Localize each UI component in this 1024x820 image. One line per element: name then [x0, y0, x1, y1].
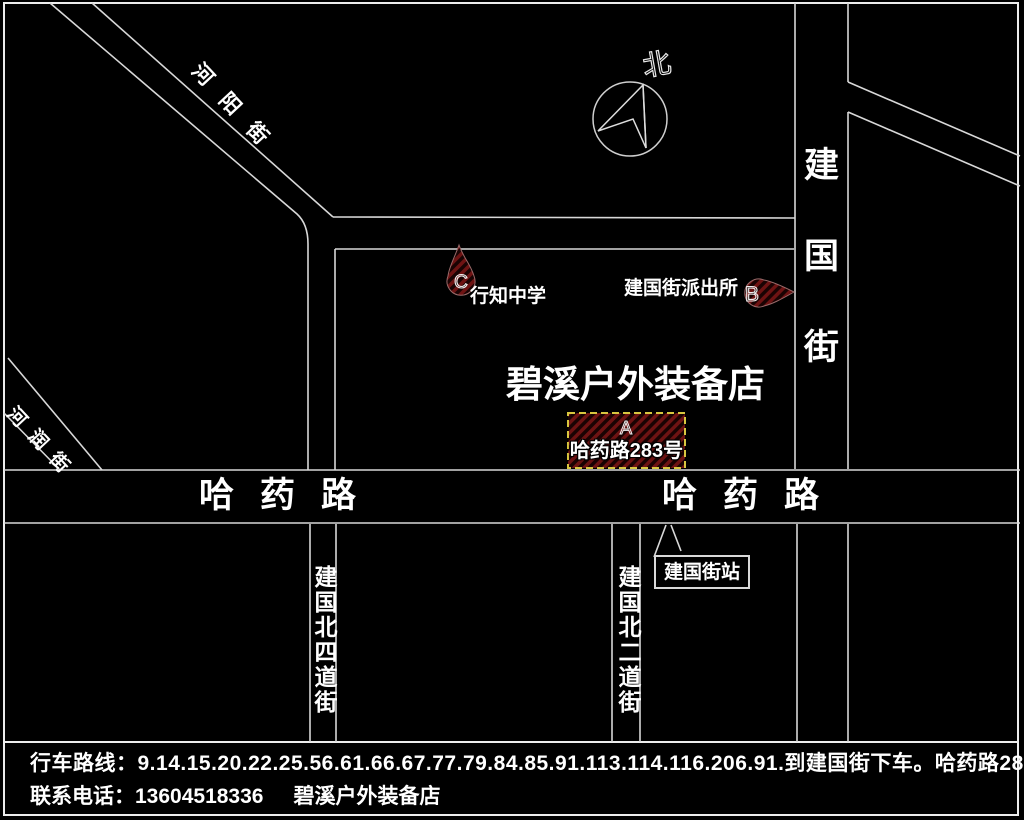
map-canvas: 北 C B A [0, 0, 1024, 820]
street-label-jianguo-north2: 建国北二道街 [616, 565, 639, 715]
compass-rose: 北 [593, 47, 673, 156]
road-heyang-lower-and-vertical [50, 3, 308, 470]
route-instructions: 行车路线：9.14.15.20.22.25.56.61.66.67.77.79.… [30, 753, 1024, 774]
bus-stop-callout: 建国街站 [654, 555, 750, 589]
busstop-pointer-left [654, 525, 666, 557]
street-label-hayao-east: 哈药路 [662, 478, 845, 513]
road-ew-upper [333, 217, 795, 218]
road-ne-diagonal-lower [848, 112, 1020, 186]
store-address: 哈药路283号 [568, 441, 685, 461]
map-frame [4, 3, 1018, 815]
marker-c-letter: C [454, 272, 468, 293]
road-ne-diagonal-upper [848, 82, 1020, 156]
poi-label-police-station: 建国街派出所 [624, 279, 738, 298]
marker-b-pin-icon: B [745, 279, 794, 307]
compass-needle-icon [598, 85, 646, 148]
street-label-jianguo: 建国街 [801, 146, 836, 419]
marker-b-letter: B [745, 283, 759, 306]
store-title: 碧溪户外装备店 [506, 366, 765, 403]
road-heyang-upper [92, 3, 333, 217]
compass-north-label: 北 [640, 47, 673, 82]
contact-store-name: 碧溪户外装备店 [293, 785, 440, 808]
marker-a-letter: A [620, 418, 632, 438]
street-label-jianguo-north4: 建国北四道街 [312, 565, 335, 715]
location-map: 北 C B A 河阳街 河润街 建国街 哈药路 哈药路 建国北四道街 建国北二道… [0, 0, 1024, 820]
compass-needle-shaft [643, 85, 646, 148]
poi-label-school: 行知中学 [470, 287, 546, 306]
compass-circle [593, 82, 667, 156]
contact-line: 联系电话：13604518336碧溪户外装备店 [30, 786, 440, 807]
contact-phone: 联系电话：13604518336 [30, 785, 263, 808]
busstop-pointer-right [671, 525, 681, 551]
street-label-hayao-west: 哈药路 [199, 478, 382, 513]
